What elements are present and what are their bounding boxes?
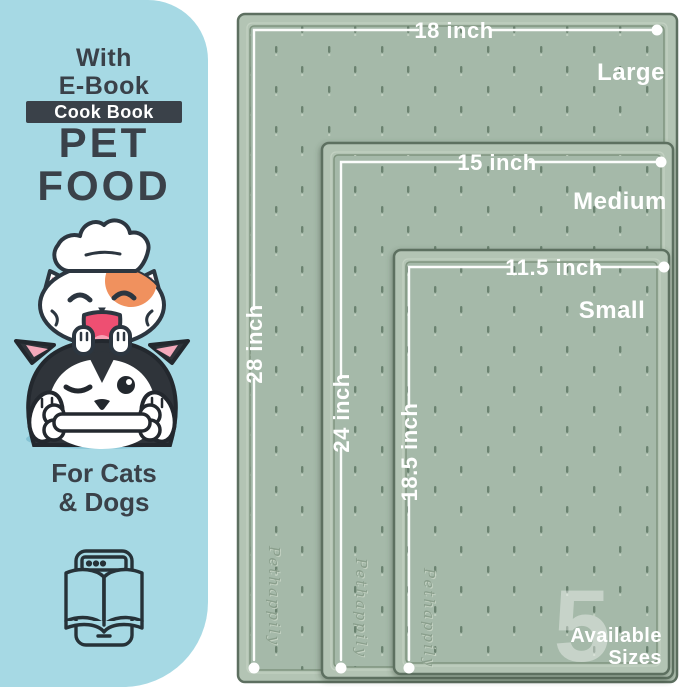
large-width-label: 18 inch <box>414 18 493 43</box>
medium-height-label: 24 inch <box>329 373 354 452</box>
embossed-brand-large: Pethappily <box>265 545 283 646</box>
sizes-label: Sizes <box>608 647 662 669</box>
medium-width-label: 15 inch <box>457 150 536 175</box>
product-infographic: With E-Book Cook Book PET FOOD <box>0 0 679 687</box>
mat-size-diagram: Pethappily Pethappily Pethappily Pethapp… <box>0 0 679 687</box>
large-name-label: Large <box>597 59 665 86</box>
available-label: Available <box>570 625 662 647</box>
small-width-label: 11.5 inch <box>505 255 602 280</box>
small-height-label: 18.5 inch <box>397 403 422 502</box>
medium-name-label: Medium <box>573 188 667 215</box>
small-name-label: Small <box>579 297 646 324</box>
large-height-label: 28 inch <box>242 304 267 383</box>
embossed-brand-medium: Pethappily <box>352 557 370 658</box>
embossed-brand-small: Pethappily <box>420 567 438 668</box>
